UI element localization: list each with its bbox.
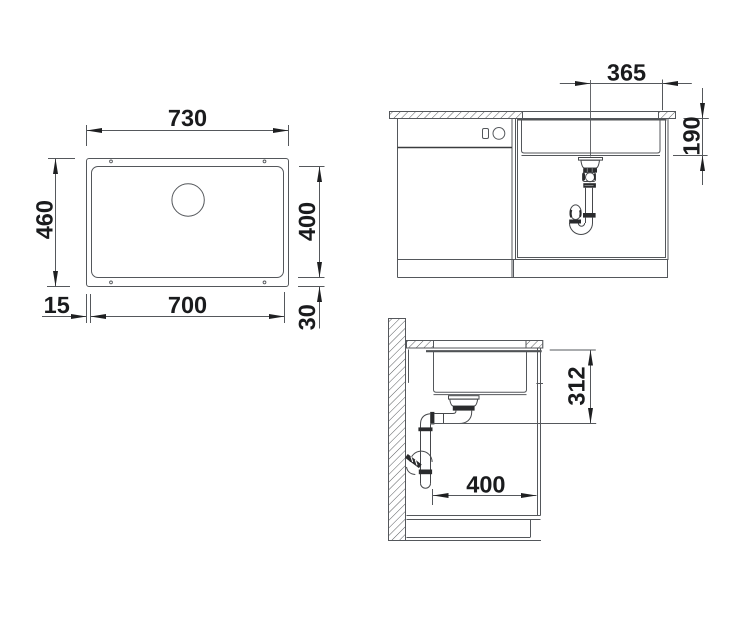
- svg-text:400: 400: [294, 202, 320, 241]
- svg-text:190: 190: [679, 116, 705, 155]
- svg-text:365: 365: [607, 60, 646, 86]
- svg-text:700: 700: [168, 292, 207, 318]
- svg-text:730: 730: [168, 105, 207, 131]
- svg-text:30: 30: [294, 304, 320, 330]
- svg-text:460: 460: [32, 200, 58, 239]
- svg-text:312: 312: [564, 366, 590, 405]
- svg-text:400: 400: [466, 472, 505, 498]
- svg-text:15: 15: [44, 292, 70, 318]
